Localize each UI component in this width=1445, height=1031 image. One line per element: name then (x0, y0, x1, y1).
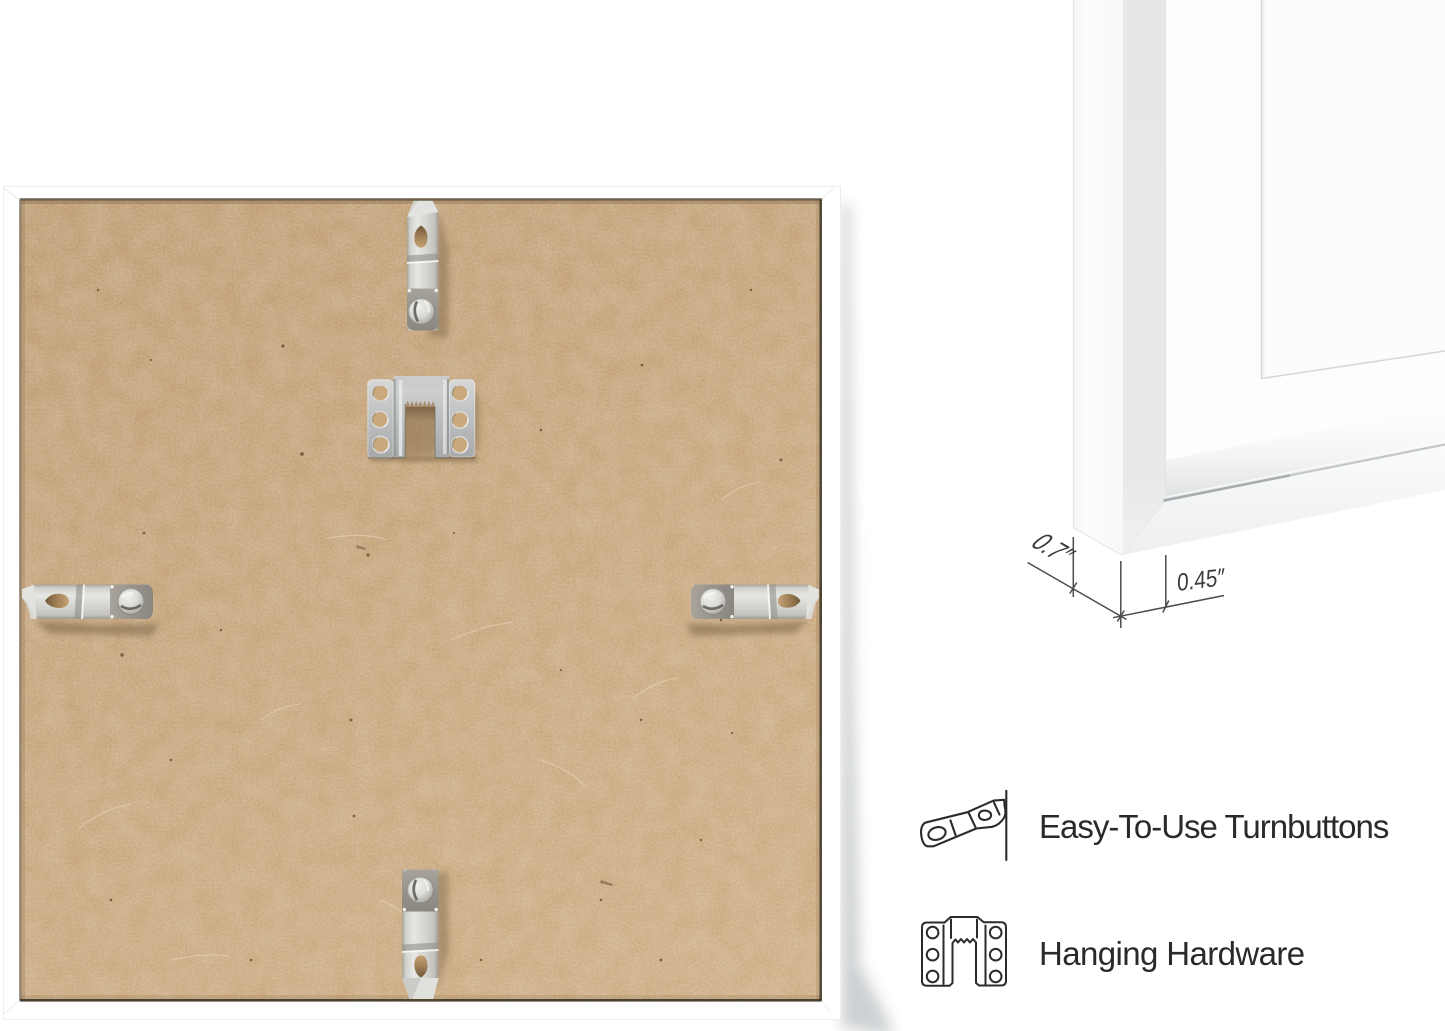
svg-text:0.45″: 0.45″ (1177, 564, 1225, 597)
